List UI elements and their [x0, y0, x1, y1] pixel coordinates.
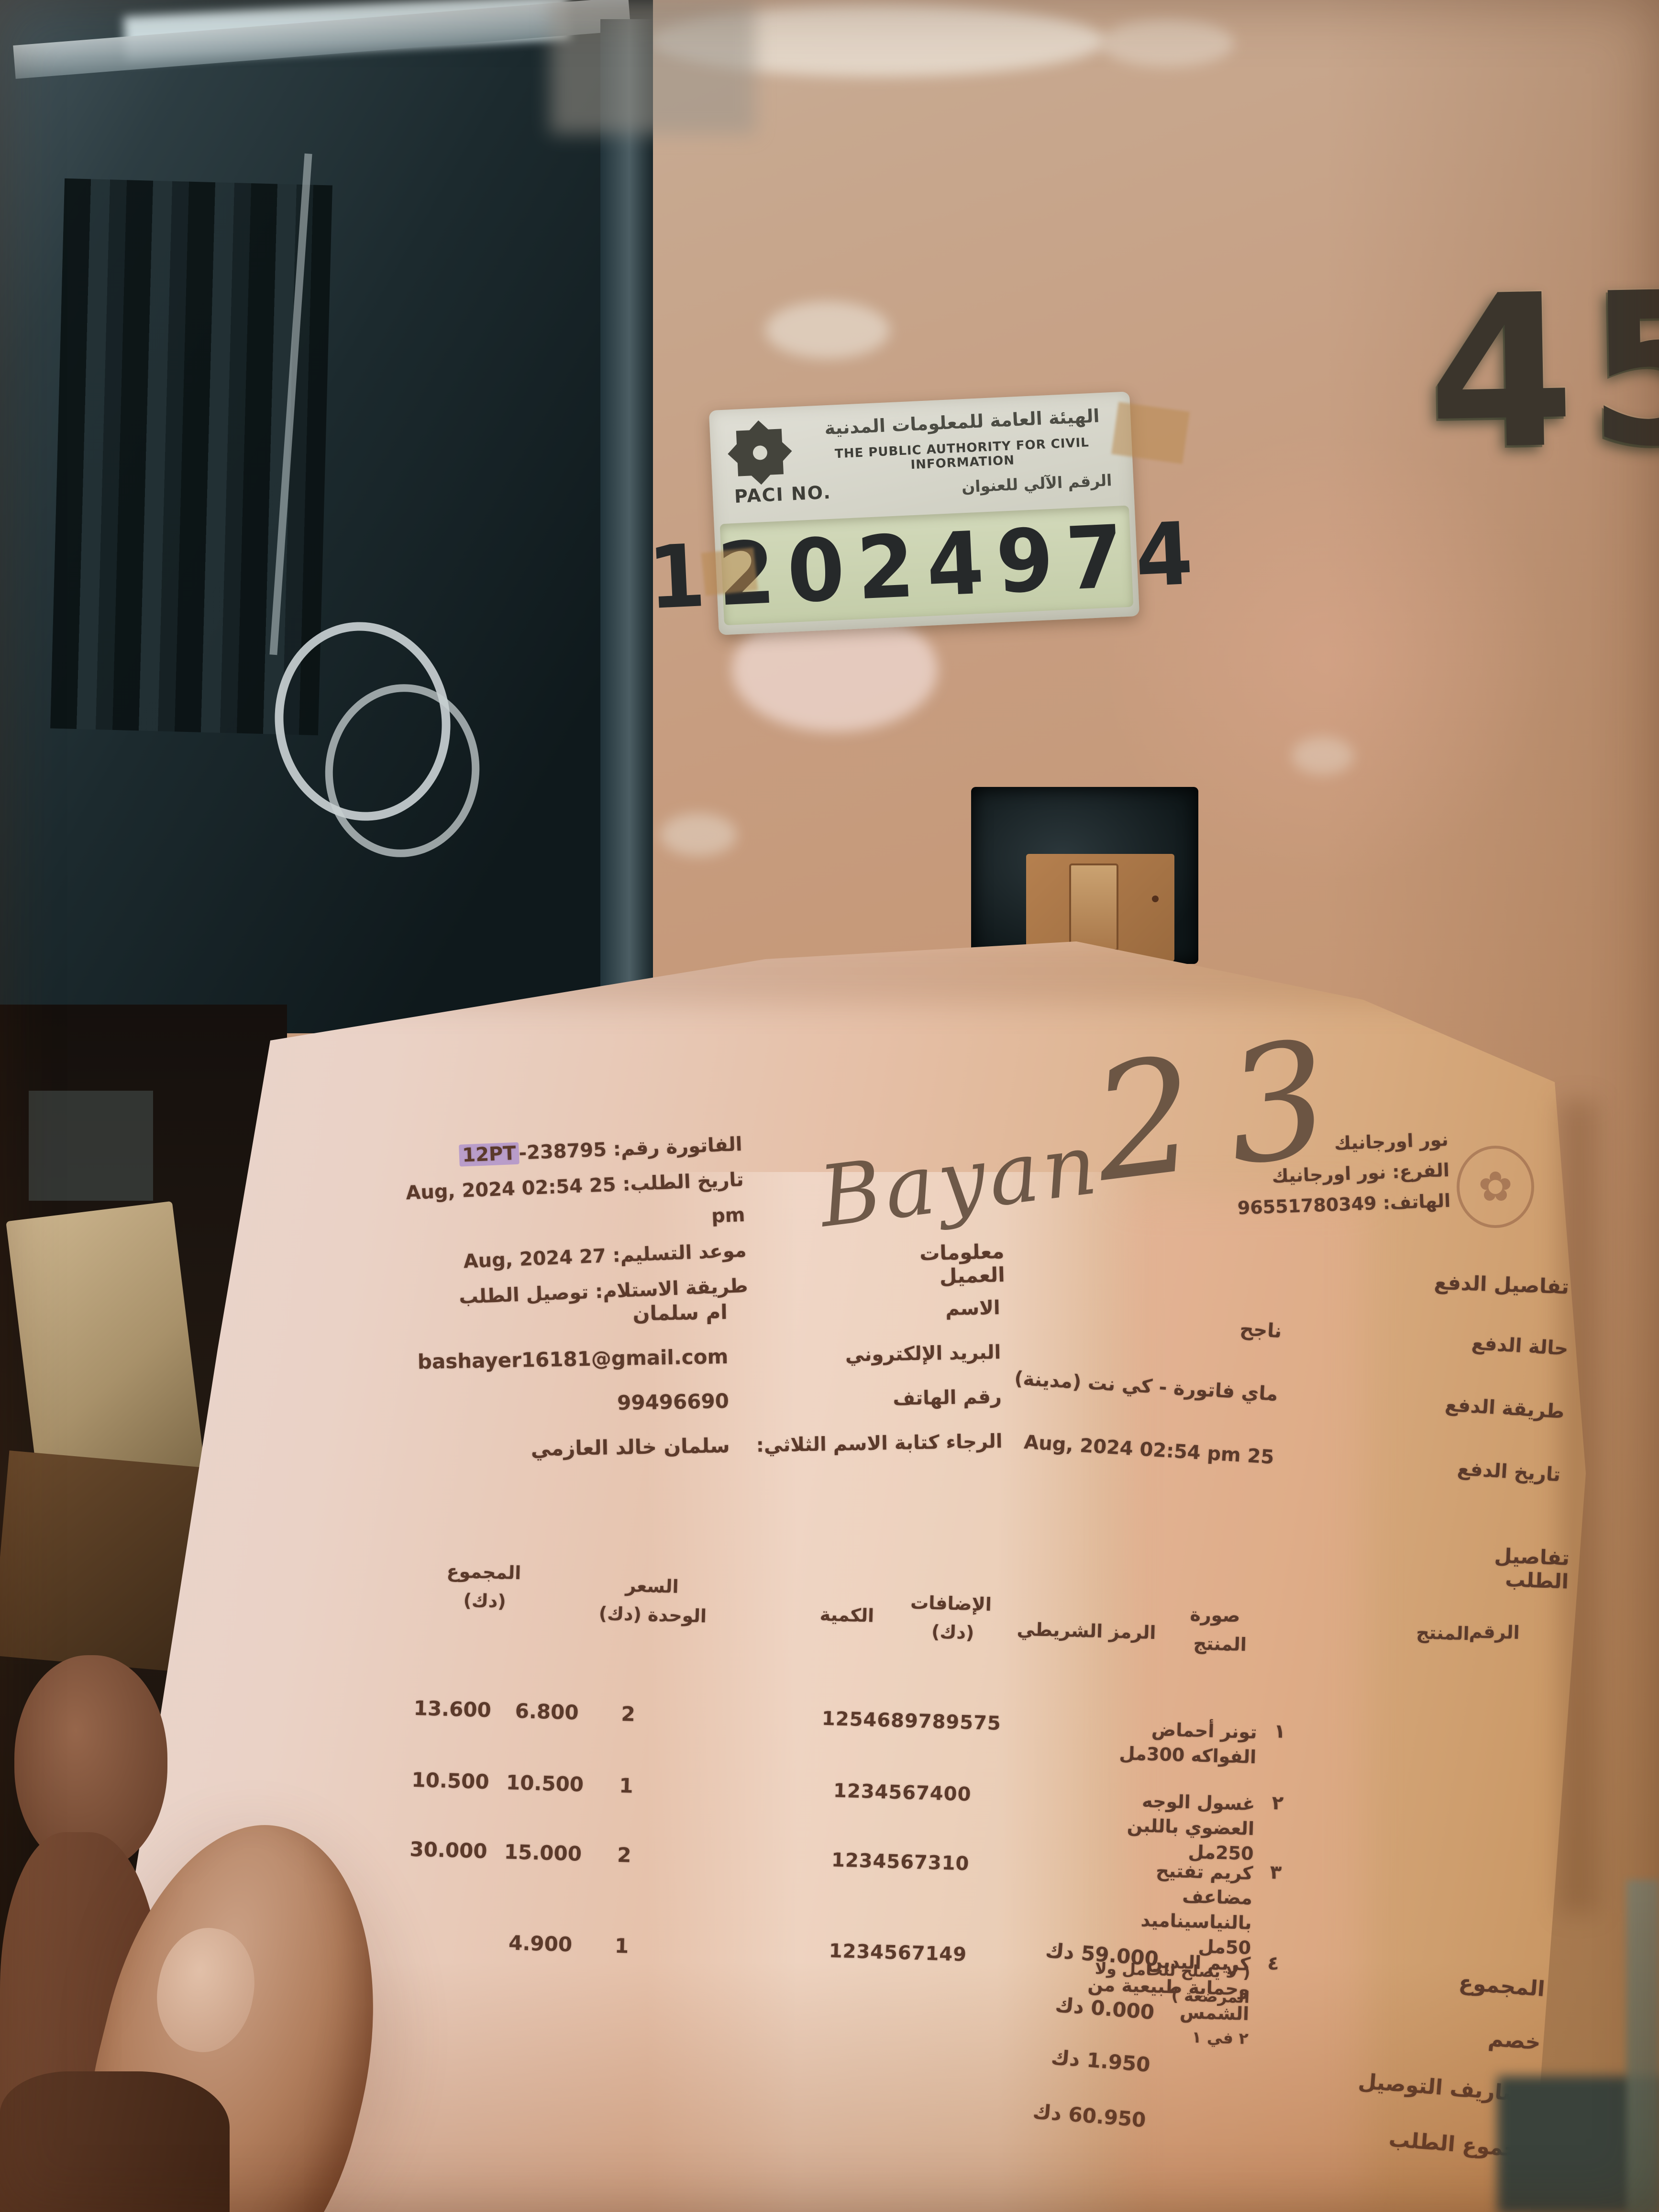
right-edge-object: [1626, 1880, 1659, 2212]
order-date-label: تاريخ الطلب:: [622, 1169, 744, 1195]
item-name-text: كريم تفتيح مضاعف بالنياسيناميد 50مل: [1140, 1860, 1253, 1958]
invoice-number-highlighted: 12PT: [459, 1142, 519, 1167]
payment-date-label: تاريخ الدفع: [1456, 1454, 1561, 1489]
plate-title-arabic: الهيئة العامة للمعلومات المدنية: [805, 404, 1119, 440]
payment-status-label: حالة الدفع: [1471, 1329, 1569, 1363]
payment-info-block: حالة الدفع ناجح طريقة الدفع ماي فاتورة -…: [994, 1300, 1569, 1524]
invoice-number-label: الفاتورة رقم:: [613, 1133, 742, 1161]
customer-row-email: البريد الإلكتروني bashayer16181@gmail.co…: [393, 1336, 1001, 1379]
customer-name-label: الاسم: [945, 1292, 1000, 1325]
customer-section-title: معلومات العميل: [856, 1239, 1005, 1290]
delivery-date-value: 27 Aug, 2024: [463, 1245, 607, 1273]
paper-edge-shadow: [1559, 1100, 1598, 1913]
door-frame-right-edge: [600, 19, 653, 1033]
tape-residue: [1111, 402, 1190, 464]
item-name: غسول الوجه العضوي باللبن 250مل: [1088, 1787, 1255, 1866]
col-unit-price-2: الوحدة (دك): [598, 1603, 707, 1627]
payment-row-date: تاريخ الدفع 25 Aug, 2024 02:54 pm: [996, 1426, 1561, 1489]
delivery-date-label: موعد التسليم:: [612, 1239, 747, 1267]
col-total-1: المجموع: [446, 1560, 521, 1583]
store-info-block: نور اورجانيك الفرع: نور اورجانيك الهاتف:…: [1171, 1124, 1451, 1226]
customer-email-value: bashayer16181@gmail.com: [393, 1341, 729, 1378]
payment-row-method: طريقة الدفع ماي فاتورة - كي نت (مدينة): [1000, 1363, 1565, 1427]
customer-fullname-label: الرجاء كتابة الاسم الثلاثي:: [756, 1426, 1003, 1461]
item-addons: [663, 1775, 820, 1779]
order-date-line: تاريخ الطلب: 25 Aug, 2024 02:54 pm: [399, 1162, 746, 1247]
item-number: ٢: [1255, 1792, 1301, 1815]
col-barcode: الرمز الشريطي: [1017, 1618, 1156, 1643]
light-switch-screw: [1152, 896, 1159, 902]
item-name: تونر أحماض الفواكه 300مل: [1091, 1715, 1258, 1770]
invoice-number-rest: -238795: [519, 1139, 607, 1164]
customer-info-block: الاسم ام سلمان البريد الإلكتروني bashaye…: [392, 1292, 1003, 1480]
item-unit-price: 10.500: [499, 1770, 590, 1796]
item-barcode: 1254689789575: [821, 1708, 987, 1735]
item-qty: 1: [590, 1773, 662, 1798]
item-qty: 1: [586, 1933, 658, 1958]
payment-method-value: ماي فاتورة - كي نت (مدينة): [1000, 1363, 1279, 1409]
interior-box: [29, 1091, 153, 1201]
payment-method-label: طريقة الدفع: [1444, 1390, 1565, 1426]
item-number: ٣: [1253, 1861, 1299, 1884]
paci-no-label-arabic: الرقم الآلي للعنوان: [961, 471, 1112, 496]
customer-name-value: ام سلمان: [392, 1296, 728, 1334]
photo-scene: الهيئة العامة للمعلومات المدنية THE PUBL…: [0, 0, 1659, 2212]
store-logo-icon: ✿: [1457, 1146, 1534, 1228]
invoice-header-block: الفاتورة رقم: 12PT-238795 تاريخ الطلب: 2…: [398, 1127, 749, 1317]
col-product: المنتج: [1416, 1622, 1470, 1644]
customer-row-fullname: الرجاء كتابة الاسم الثلاثي: سلمان خالد ا…: [395, 1425, 1003, 1468]
col-addons-2: (دك): [931, 1621, 974, 1643]
item-number: ١: [1257, 1720, 1303, 1743]
paci-no-label: PACI NO.: [734, 482, 832, 507]
col-number: الرقم: [1469, 1621, 1520, 1643]
customer-row-phone: رقم الهاتف 99496690: [394, 1381, 1002, 1423]
wall-peeling-patch: [1292, 737, 1354, 775]
item-total: 13.600: [403, 1696, 502, 1722]
item-addons: [664, 1703, 822, 1707]
col-product-image-1: صورة: [1190, 1604, 1240, 1626]
tape-residue: [701, 547, 758, 596]
customer-email-label: البريد الإلكتروني: [845, 1337, 1001, 1371]
house-number: 45: [1426, 246, 1659, 497]
item-barcode: 1234567310: [818, 1849, 983, 1876]
payment-date-value: 25 Aug, 2024 02:54 pm: [996, 1426, 1275, 1471]
customer-fullname-value: سلمان خالد العازمي: [395, 1430, 730, 1467]
interior-beige-box: [6, 1201, 205, 1487]
light-switch-rocker: [1069, 863, 1118, 951]
wall-peeling-patch: [1100, 19, 1234, 67]
item-unit-price: 6.800: [501, 1699, 593, 1725]
wall-grey-corner: [550, 0, 756, 134]
customer-phone-label: رقم الهاتف: [893, 1381, 1002, 1415]
item-qty: 2: [592, 1701, 664, 1726]
col-quantity: الكمية: [819, 1604, 874, 1626]
col-total-2: (دك): [463, 1590, 506, 1612]
col-product-image-2: المنتج: [1193, 1633, 1247, 1655]
customer-phone-value: 99496690: [394, 1385, 729, 1423]
payment-section-title: تفاصيل الدفع: [1416, 1270, 1570, 1298]
paci-address-plate: الهيئة العامة للمعلومات المدنية THE PUBL…: [709, 391, 1139, 635]
wall-peeling-patch: [660, 813, 737, 856]
item-unit-price: 4.900: [495, 1931, 586, 1957]
table-row: ١ تونر أحماض الفواكه 300مل 1254689789575…: [398, 1696, 1303, 1771]
item-qty: 2: [588, 1842, 660, 1868]
item-unit-price: 15.000: [497, 1840, 588, 1866]
plate-number-band: 12024974: [720, 506, 1134, 626]
plate-number-label-row: PACI NO. الرقم الآلي للعنوان: [734, 469, 1112, 507]
wrist: [0, 2071, 230, 2212]
col-unit-price-1: السعر: [625, 1575, 679, 1597]
col-addons-1: الإضافات: [910, 1592, 992, 1615]
wall-peeling-patch: [765, 301, 890, 359]
item-barcode: 1234567400: [819, 1780, 985, 1806]
